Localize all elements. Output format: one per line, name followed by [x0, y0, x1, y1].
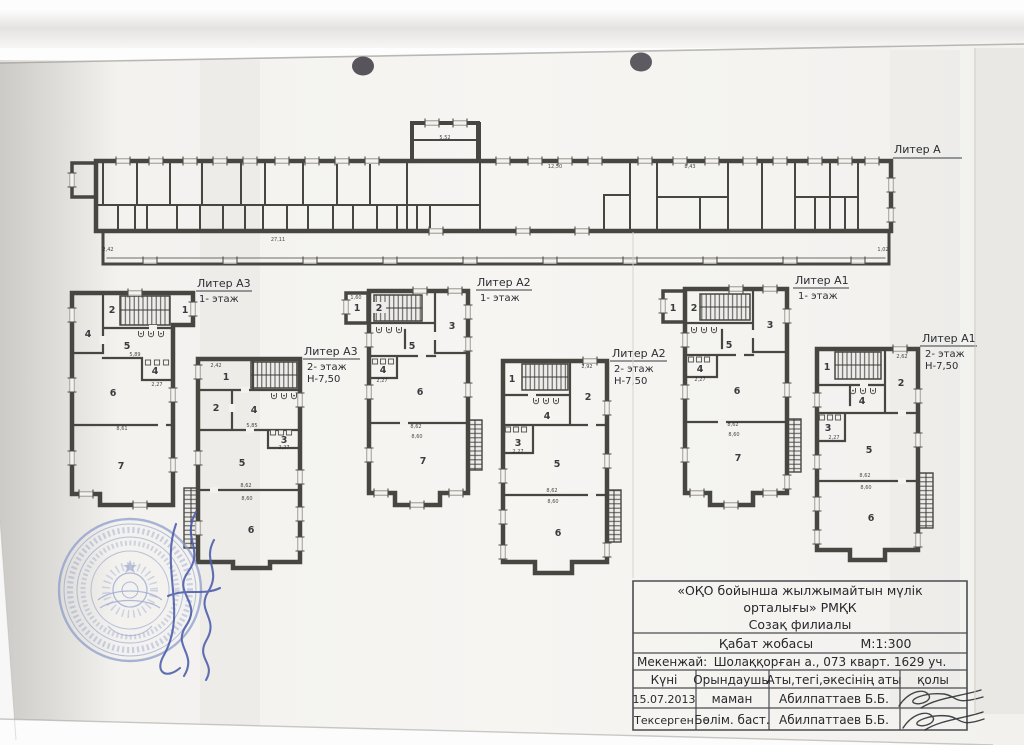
plan-label: Литер А2: [612, 347, 666, 360]
plan-label: Литер А1: [795, 274, 849, 287]
svg-text:6: 6: [110, 388, 117, 399]
svg-text:2,27: 2,27: [828, 435, 839, 441]
svg-text:8,60: 8,60: [241, 496, 252, 502]
svg-text:7: 7: [420, 456, 427, 467]
svg-text:2,42: 2,42: [210, 363, 221, 369]
svg-text:1: 1: [182, 305, 189, 316]
document-title: Қабат жобасы: [719, 636, 813, 651]
svg-text:2,62: 2,62: [896, 354, 907, 360]
org-name-line2: орталығы» РМҚК: [743, 600, 856, 615]
svg-text:5: 5: [409, 341, 416, 352]
plan-label: Литер А3: [197, 277, 251, 290]
date-value: 15.07.2013: [633, 693, 696, 706]
svg-text:5: 5: [554, 459, 561, 470]
plan-label: Литер А1: [922, 332, 976, 345]
checked-label: Тексерген: [633, 714, 694, 727]
svg-text:6: 6: [734, 386, 741, 397]
svg-text:27,11: 27,11: [271, 237, 285, 243]
svg-text:8,61: 8,61: [116, 426, 127, 432]
svg-text:5: 5: [726, 340, 733, 351]
col-signature: қолы: [917, 673, 949, 687]
svg-text:1: 1: [223, 372, 230, 383]
hole-punch-right: [630, 53, 652, 72]
plan-floor: 1- этаж: [199, 294, 239, 305]
svg-text:8,62: 8,62: [410, 424, 421, 430]
svg-text:1: 1: [670, 303, 677, 314]
table-row: Тексерген Бөлім. баст. Абилпаттаев Б.Б.: [633, 713, 889, 727]
plan-floor: 1- этаж: [798, 291, 838, 302]
svg-text:4: 4: [85, 329, 92, 340]
name-value: Абилпаттаев Б.Б.: [779, 692, 889, 706]
svg-text:5: 5: [239, 458, 246, 469]
role-value: маман: [712, 692, 753, 706]
scanner-lid-shadow: [0, 8, 1024, 48]
svg-text:2,92: 2,92: [581, 364, 592, 370]
svg-text:2,27: 2,27: [151, 382, 162, 388]
svg-text:8,62: 8,62: [859, 473, 870, 479]
svg-text:2,27: 2,27: [512, 449, 523, 455]
svg-text:1: 1: [509, 374, 516, 385]
svg-text:12,50: 12,50: [548, 164, 562, 170]
svg-text:8,60: 8,60: [547, 499, 558, 505]
svg-text:2: 2: [898, 378, 905, 389]
svg-text:5,89: 5,89: [129, 352, 140, 358]
branch-name: Созақ филиалы: [749, 617, 852, 632]
svg-text:6: 6: [868, 513, 875, 524]
col-fullname: Аты,тегі,әкесінің аты: [767, 673, 902, 687]
svg-text:1,60: 1,60: [350, 295, 361, 301]
svg-text:8,62: 8,62: [240, 483, 251, 489]
svg-text:2,27: 2,27: [694, 377, 705, 383]
plan-floor: 1- этаж: [480, 293, 520, 304]
svg-text:3: 3: [515, 438, 522, 449]
svg-text:2: 2: [376, 303, 383, 314]
plan-height: Н-7,50: [307, 374, 340, 385]
svg-text:4: 4: [544, 411, 551, 422]
svg-text:8,43: 8,43: [684, 164, 695, 170]
svg-text:1: 1: [354, 303, 361, 314]
right-fold-shade: [976, 48, 1024, 714]
plan-floor: 2- этаж: [307, 362, 347, 373]
svg-text:7: 7: [735, 453, 742, 464]
plan-label: Литер А: [894, 143, 941, 156]
col-date: Күні: [651, 673, 678, 687]
address-value: Шолаққорған а., 073 кварт. 1629 уч.: [714, 655, 947, 669]
svg-text:8,62: 8,62: [727, 422, 738, 428]
plan-height: Н-7,50: [925, 361, 958, 372]
svg-text:3: 3: [449, 321, 456, 332]
svg-text:5: 5: [866, 445, 873, 456]
svg-text:4: 4: [251, 405, 258, 416]
svg-text:3: 3: [825, 423, 832, 434]
svg-text:8,60: 8,60: [411, 434, 422, 440]
plan-label: Литер А2: [477, 276, 531, 289]
col-executor: Орындаушы: [693, 673, 771, 687]
name-value: Абилпаттаев Б.Б.: [779, 713, 889, 727]
hole-punch-left: [352, 57, 374, 76]
svg-text:5: 5: [124, 341, 131, 352]
svg-text:4: 4: [152, 366, 159, 377]
svg-text:4: 4: [380, 365, 387, 376]
plan-floor: 2- этаж: [925, 349, 965, 360]
svg-text:8,60: 8,60: [728, 432, 739, 438]
plan-height: Н-7,50: [614, 376, 647, 387]
svg-text:4: 4: [859, 396, 866, 407]
role-value: Бөлім. баст.: [694, 713, 769, 727]
svg-text:6: 6: [555, 528, 562, 539]
svg-text:3: 3: [767, 320, 774, 331]
svg-text:1: 1: [824, 362, 831, 373]
plan-label: Литер А3: [304, 345, 358, 358]
svg-text:2,27: 2,27: [376, 378, 387, 384]
svg-text:8,62: 8,62: [546, 488, 557, 494]
scanned-floor-plan-page: Литер А 12,50 8,43 5,52 27,11 2,42 1,02: [0, 0, 1024, 745]
svg-text:8,60: 8,60: [860, 485, 871, 491]
svg-text:4: 4: [697, 364, 704, 375]
svg-text:6: 6: [417, 387, 424, 398]
svg-text:2: 2: [585, 392, 592, 403]
address-label: Мекенжай:: [637, 655, 707, 669]
svg-text:2,42: 2,42: [102, 247, 113, 253]
svg-text:2: 2: [213, 403, 220, 414]
svg-text:2: 2: [691, 303, 698, 314]
svg-text:7: 7: [118, 461, 125, 472]
svg-text:6: 6: [248, 525, 255, 536]
svg-text:1,02: 1,02: [877, 247, 888, 253]
org-name-line1: «ОҚО бойынша жылжымайтын мүлік: [677, 583, 923, 598]
plan-floor: 2- этаж: [614, 364, 654, 375]
svg-text:5,52: 5,52: [439, 135, 450, 141]
svg-text:5,85: 5,85: [246, 423, 257, 429]
svg-text:2,27: 2,27: [278, 445, 289, 451]
scale-value: М:1:300: [860, 636, 911, 651]
svg-text:2: 2: [109, 305, 116, 316]
